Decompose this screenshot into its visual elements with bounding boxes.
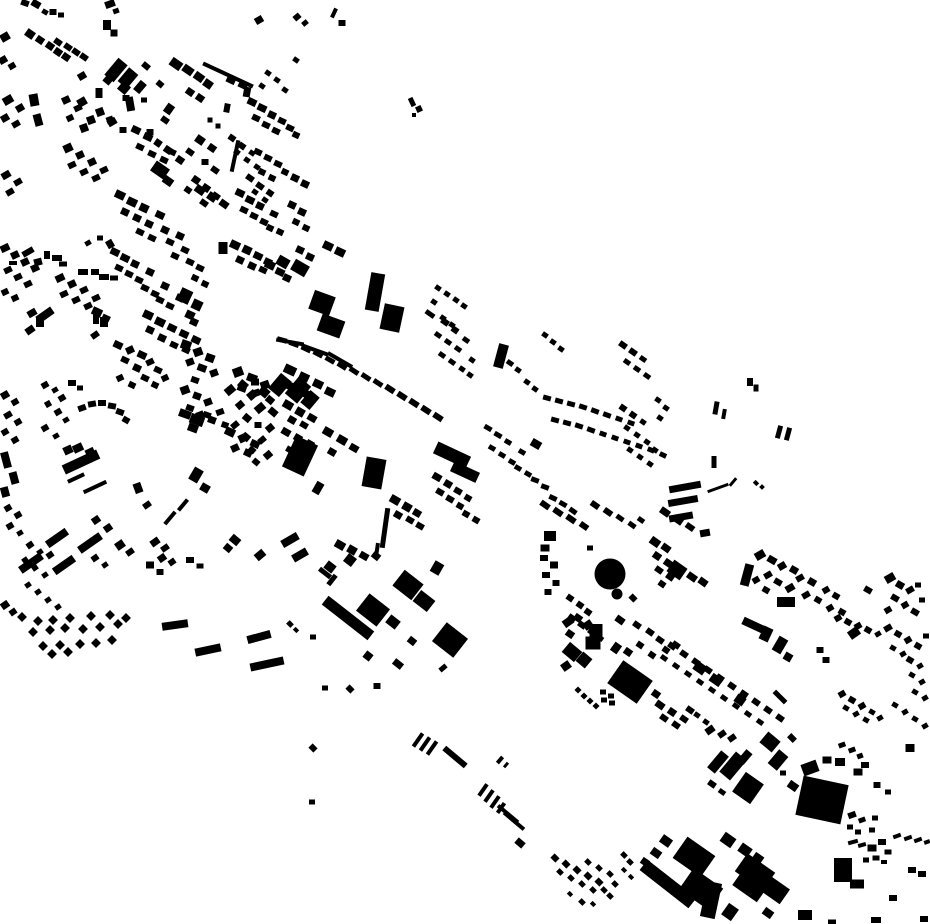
building-footprint — [197, 564, 204, 569]
building-footprint — [34, 588, 42, 596]
building-footprint — [590, 901, 596, 907]
building-footprint — [141, 98, 147, 103]
building-footprint — [654, 565, 664, 575]
building-footprint — [194, 643, 221, 656]
building-footprint — [717, 729, 727, 739]
building-footprint — [885, 850, 892, 855]
building-footprint — [246, 97, 257, 107]
building-footprint — [847, 825, 853, 830]
building-footprint — [580, 692, 587, 699]
building-footprint — [305, 252, 315, 262]
building-footprint — [561, 859, 570, 868]
building-footprint — [160, 281, 170, 291]
building-footprint — [3, 410, 13, 419]
building-footprint — [273, 160, 283, 169]
building-footprint — [893, 630, 902, 639]
building-footprint — [242, 413, 253, 424]
building-footprint — [0, 428, 9, 437]
building-footprint — [294, 406, 306, 417]
building-footprint — [0, 600, 10, 610]
building-footprint — [44, 400, 52, 408]
building-footprint — [679, 714, 689, 724]
building-footprint — [863, 585, 873, 594]
building-footprint — [126, 196, 138, 207]
building-footprint — [699, 529, 710, 538]
building-footprint — [807, 577, 817, 587]
building-footprint — [259, 218, 269, 227]
building-footprint — [0, 170, 11, 181]
building-footprint — [0, 390, 10, 400]
building-footprint — [132, 363, 142, 373]
building-footprint — [292, 131, 301, 139]
building-footprint — [628, 593, 637, 602]
building-footprint — [24, 28, 36, 40]
building-footprint — [460, 302, 468, 310]
building-footprint — [906, 744, 915, 752]
building-footprint — [124, 270, 134, 279]
building-footprint — [25, 541, 34, 550]
building-footprint — [697, 577, 708, 588]
building-footprint — [157, 569, 164, 575]
building-footprint — [883, 606, 892, 615]
building-footprint — [392, 658, 404, 670]
building-footprint — [430, 298, 438, 306]
building-footprint — [142, 309, 154, 320]
building-footprint — [185, 357, 195, 366]
building-footprint — [207, 143, 218, 153]
building-footprint — [185, 87, 196, 97]
building-footprint — [768, 749, 789, 771]
figure-ground-map — [0, 0, 930, 924]
building-footprint — [90, 554, 99, 563]
building-footprint — [702, 718, 710, 726]
building-footprint — [188, 466, 204, 483]
building-footprint — [195, 93, 206, 103]
building-footprint — [195, 264, 205, 273]
building-footprint — [91, 515, 102, 525]
building-footprint — [190, 376, 200, 384]
building-footprint — [795, 776, 848, 825]
building-footprint — [766, 555, 777, 566]
building-footprint — [256, 103, 267, 113]
building-footprint — [219, 242, 228, 254]
building-footprint — [253, 148, 263, 157]
building-footprint — [493, 431, 502, 439]
building-footprint — [243, 156, 251, 164]
building-footprint — [63, 647, 73, 657]
building-footprint — [873, 856, 880, 861]
building-footprint — [586, 426, 595, 433]
building-footprint — [565, 629, 576, 639]
building-footprint — [162, 619, 189, 631]
building-footprint — [239, 206, 249, 215]
building-footprint — [53, 47, 64, 57]
building-footprint — [881, 860, 887, 864]
building-footprint — [125, 345, 135, 355]
building-footprint — [541, 331, 549, 339]
building-footprint — [293, 627, 299, 633]
building-footprint — [408, 97, 416, 107]
building-footprint — [20, 257, 30, 267]
building-footprint — [530, 476, 539, 483]
building-footprint — [620, 851, 628, 859]
building-footprint — [623, 358, 632, 366]
building-footprint — [343, 553, 357, 567]
building-footprint — [754, 549, 767, 561]
building-footprint — [84, 239, 92, 246]
building-footprint — [777, 561, 787, 571]
building-footprint — [13, 177, 23, 186]
building-footprint — [901, 708, 909, 715]
building-footprint — [916, 662, 924, 669]
building-footprint — [393, 510, 403, 520]
building-footprint — [133, 80, 147, 94]
building-footprint — [310, 635, 316, 640]
building-footprint — [407, 636, 418, 646]
building-footprint — [443, 479, 453, 489]
building-footprint — [108, 402, 117, 409]
building-footprint — [191, 274, 200, 282]
building-footprint — [780, 771, 786, 776]
building-footprint — [921, 722, 929, 729]
building-footprint — [67, 279, 77, 289]
building-footprint — [589, 886, 597, 894]
building-footprint — [190, 298, 203, 311]
building-footprint — [268, 174, 277, 182]
building-footprint — [292, 218, 301, 226]
building-footprint — [52, 255, 62, 261]
building-footprint — [923, 634, 929, 639]
building-footprint — [685, 705, 695, 715]
building-footprint — [911, 715, 919, 722]
building-footprint — [322, 686, 328, 691]
building-footprint — [169, 341, 179, 350]
building-footprint — [709, 673, 724, 687]
building-footprint — [230, 443, 240, 453]
building-footprint — [920, 916, 928, 922]
building-footprint — [9, 261, 17, 265]
building-footprint — [557, 345, 565, 353]
building-footprint — [550, 853, 559, 862]
building-footprint — [190, 335, 201, 345]
building-footprint — [707, 483, 729, 493]
building-footprint — [825, 604, 834, 613]
building-footprint — [110, 276, 118, 281]
building-footprint — [389, 494, 402, 506]
building-footprint — [684, 670, 693, 678]
building-footprint — [312, 378, 324, 389]
building-footprint — [430, 560, 445, 575]
building-footprint — [51, 386, 59, 393]
building-footprint — [249, 212, 259, 221]
building-footprint — [163, 511, 176, 526]
building-footprint — [125, 547, 135, 557]
building-footprint — [121, 613, 131, 623]
building-footprint — [227, 134, 236, 143]
building-footprint — [380, 303, 405, 333]
building-footprint — [759, 731, 780, 752]
building-footprint — [721, 409, 727, 420]
building-footprint — [202, 159, 209, 165]
building-footprint — [606, 892, 614, 900]
building-footprint — [62, 416, 70, 423]
building-footprint — [618, 340, 628, 350]
building-footprint — [838, 741, 846, 748]
building-footprint — [246, 630, 271, 644]
building-footprint — [194, 134, 206, 146]
building-footprint — [283, 363, 298, 376]
building-footprint — [0, 451, 12, 469]
building-footprint — [483, 424, 492, 432]
building-footprint — [235, 400, 246, 411]
large-circle-landmark — [595, 559, 626, 590]
building-footprint — [442, 746, 467, 769]
building-footprint — [60, 623, 70, 633]
building-footprint — [24, 325, 35, 336]
building-footprint — [609, 701, 615, 706]
building-footprint — [145, 325, 155, 335]
building-footprint — [308, 743, 317, 752]
building-footprint — [261, 121, 271, 130]
building-footprint — [142, 500, 152, 510]
building-footprint — [23, 280, 33, 289]
building-footprint — [471, 516, 480, 525]
building-footprint — [98, 400, 106, 406]
building-footprint — [362, 456, 387, 489]
building-footprint — [99, 166, 109, 175]
building-footprint — [165, 238, 175, 247]
building-footprint — [10, 250, 20, 260]
building-footprint — [618, 404, 627, 413]
building-footprint — [138, 202, 150, 213]
building-footprint — [185, 258, 195, 267]
building-footprint — [763, 570, 773, 579]
building-footprint — [647, 651, 656, 660]
building-footprint — [312, 481, 325, 495]
building-footprint — [801, 590, 811, 599]
building-footprint — [254, 549, 267, 562]
building-footprint — [183, 186, 192, 195]
building-footprint — [445, 494, 455, 503]
building-footprint — [62, 142, 74, 153]
building-footprint — [432, 622, 468, 658]
building-footprint — [53, 408, 62, 417]
building-footprint — [524, 470, 533, 478]
building-footprint — [33, 616, 43, 626]
building-footprint — [45, 551, 54, 560]
building-footprint — [727, 681, 737, 691]
building-footprint — [662, 404, 670, 412]
building-footprint — [872, 816, 878, 821]
building-footprint — [863, 626, 872, 635]
building-footprint — [322, 426, 335, 438]
building-footprint — [29, 93, 40, 106]
building-footprint — [68, 380, 76, 386]
building-footprint — [120, 356, 130, 365]
building-footprint — [740, 563, 754, 587]
building-footprint — [603, 507, 614, 517]
building-footprint — [91, 638, 101, 648]
building-footprint — [292, 56, 300, 64]
building-footprint — [119, 253, 130, 263]
building-footprint — [903, 636, 912, 645]
building-footprint — [498, 451, 507, 459]
building-footprint — [458, 365, 466, 373]
building-footprint — [913, 642, 922, 651]
building-footprint — [408, 398, 420, 408]
building-footprint — [843, 618, 852, 627]
building-footprint — [199, 198, 209, 208]
building-footprint — [86, 115, 96, 125]
building-footprint — [3, 266, 13, 275]
building-footprint — [269, 210, 279, 219]
building-footprint — [627, 419, 635, 426]
building-footprint — [161, 374, 170, 382]
building-footprint — [40, 381, 49, 390]
building-footprint — [623, 647, 634, 657]
building-footprint — [384, 384, 396, 394]
building-footprint — [104, 0, 116, 9]
building-footprint — [95, 622, 105, 632]
building-footprint — [518, 448, 527, 456]
building-footprint — [583, 608, 592, 617]
building-footprint — [101, 561, 109, 569]
building-footprint — [685, 522, 696, 532]
building-footprint — [169, 57, 184, 71]
building-footprint — [654, 396, 662, 404]
building-footprint — [1, 288, 10, 296]
building-footprint — [348, 443, 359, 454]
building-footprint — [434, 331, 443, 339]
building-footprint — [893, 833, 902, 839]
building-footprint — [16, 529, 24, 536]
building-footprint — [514, 837, 525, 848]
building-footprint — [97, 236, 103, 241]
building-footprint — [874, 630, 882, 637]
building-footprint — [895, 580, 905, 590]
building-footprint — [178, 329, 189, 339]
building-footprint — [11, 119, 21, 128]
building-footprint — [883, 623, 893, 632]
building-footprint — [165, 302, 175, 311]
building-footprint — [632, 620, 642, 630]
building-footprint — [201, 280, 210, 288]
building-footprint — [252, 251, 263, 261]
building-footprint — [133, 482, 144, 494]
building-footprint — [817, 647, 824, 653]
building-footprint — [759, 484, 765, 490]
building-footprint — [83, 480, 107, 494]
building-footprint — [271, 127, 281, 136]
building-footprint — [686, 571, 698, 582]
building-footprint — [679, 649, 689, 659]
building-footprint — [904, 835, 913, 841]
building-footprint — [541, 545, 550, 552]
building-footprint — [47, 649, 57, 659]
building-footprint — [910, 607, 920, 616]
building-footprint — [908, 671, 916, 678]
building-footprint — [317, 313, 346, 338]
building-footprint — [385, 614, 401, 629]
building-footprint — [71, 296, 81, 305]
building-footprint — [773, 690, 788, 705]
building-footprint — [263, 154, 273, 163]
building-footprint — [59, 290, 69, 299]
building-footprint — [712, 401, 719, 415]
building-footprint — [461, 510, 470, 519]
building-footprint — [514, 366, 522, 374]
building-footprint — [10, 398, 19, 407]
building-footprint — [265, 423, 276, 434]
building-footprint — [583, 871, 592, 880]
building-footprint — [669, 481, 702, 493]
building-footprint — [914, 837, 923, 843]
building-footprint — [611, 434, 619, 441]
building-footprint — [241, 244, 253, 255]
building-footprint — [636, 453, 644, 461]
building-footprint — [649, 536, 662, 548]
building-footprint — [145, 358, 155, 367]
building-footprint — [287, 415, 297, 425]
building-footprint — [79, 168, 89, 177]
building-footprint — [24, 581, 32, 589]
building-footprint — [552, 507, 564, 518]
building-footprint — [77, 532, 103, 553]
building-footprint — [756, 718, 765, 726]
building-footprint — [5, 522, 14, 531]
building-footprint — [821, 586, 830, 595]
building-footprint — [784, 583, 795, 594]
building-footprint — [264, 69, 272, 77]
building-footprint — [151, 381, 160, 389]
building-footprint — [412, 113, 416, 117]
building-footprint — [193, 71, 206, 83]
building-footprint — [568, 507, 577, 516]
building-footprint — [77, 404, 87, 412]
building-footprint — [13, 273, 23, 282]
building-footprint — [308, 290, 336, 316]
building-footprint — [637, 516, 646, 524]
building-footprint — [539, 500, 551, 511]
building-footprint — [578, 898, 586, 906]
building-footprint — [75, 639, 85, 649]
building-footprint — [592, 702, 599, 709]
building-footprint — [889, 895, 897, 901]
building-footprint — [203, 397, 213, 406]
building-footprint — [116, 374, 125, 382]
building-footprint — [35, 35, 46, 45]
building-footprint — [360, 372, 371, 382]
building-footprint — [358, 551, 369, 562]
building-footprint — [696, 678, 705, 686]
building-footprint — [75, 150, 85, 160]
building-footprint — [115, 408, 125, 416]
building-footprint — [615, 514, 624, 523]
building-footprint — [63, 42, 73, 52]
building-footprint — [789, 565, 799, 575]
building-footprint — [297, 207, 307, 217]
building-footprint — [623, 424, 631, 432]
building-footprint — [265, 189, 274, 198]
building-footprint — [40, 424, 49, 433]
building-footprint — [657, 580, 666, 589]
building-footprint — [244, 195, 255, 205]
building-footprint — [567, 874, 575, 882]
building-footprint — [208, 118, 213, 123]
building-footprint — [831, 592, 840, 601]
building-footprint — [71, 47, 81, 57]
building-footprint — [721, 903, 739, 921]
